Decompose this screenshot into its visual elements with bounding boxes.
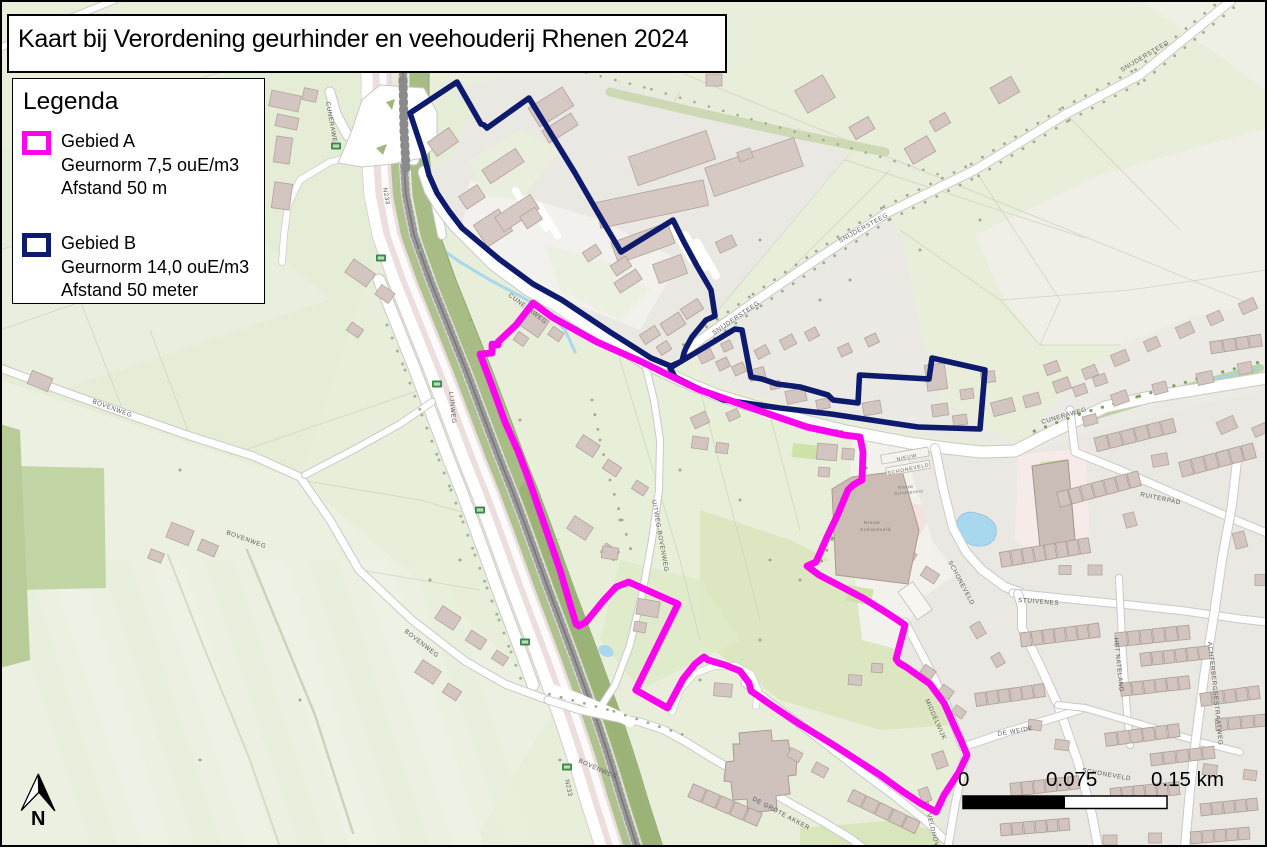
svg-text:0.075: 0.075 bbox=[1046, 768, 1097, 791]
svg-text:N: N bbox=[31, 808, 45, 830]
svg-text:Nieuw: Nieuw bbox=[864, 520, 880, 526]
svg-text:Schoneveld: Schoneveld bbox=[860, 527, 891, 533]
svg-text:0.15 km: 0.15 km bbox=[1151, 768, 1224, 791]
svg-text:0: 0 bbox=[958, 768, 969, 791]
